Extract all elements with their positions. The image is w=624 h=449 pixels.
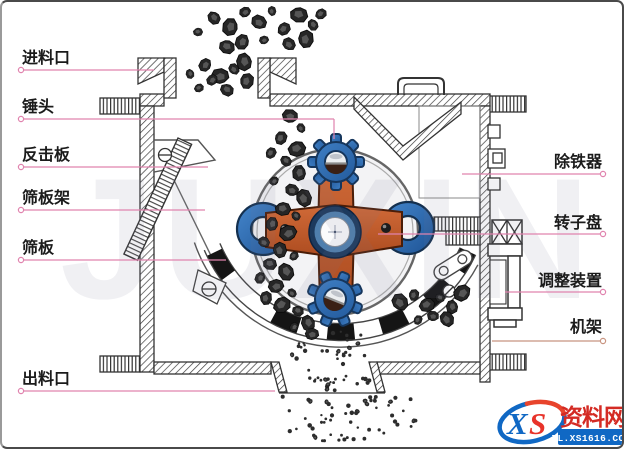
leader-dot <box>18 116 23 121</box>
logo-monogram-s: S <box>529 406 546 441</box>
logo-domain: ZL.XS1616.COM <box>551 433 624 444</box>
label-screen-frame: 筛板架 <box>22 188 70 207</box>
label-hammer-head: 锤头 <box>22 97 54 116</box>
mount-block-top-right <box>488 96 526 112</box>
leader-dot <box>18 388 23 393</box>
diagram-page: JUXIN 进料口 锤头 反击板 筛板架 筛板 出料口 <box>0 0 624 449</box>
leader-dot <box>600 231 605 236</box>
leader-dot <box>18 257 23 262</box>
logo-monogram-x: X <box>506 406 529 441</box>
leader-dot <box>18 207 23 212</box>
label-frame: 机架 <box>570 317 602 336</box>
leader-dot <box>600 338 605 343</box>
crushed-particles <box>281 329 418 442</box>
top-wall-left <box>140 94 164 106</box>
mount-block-bottom-left <box>100 356 140 372</box>
label-feed-inlet: 进料口 <box>22 48 70 67</box>
leader-dot <box>18 164 23 169</box>
logo-site-name: 资料网 <box>560 405 624 430</box>
lifting-handle <box>398 78 444 95</box>
floor-left <box>154 362 271 374</box>
label-iron-remover: 除铁器 <box>554 152 603 171</box>
leader-dot <box>600 171 605 176</box>
label-screen-plate: 筛板 <box>22 238 55 257</box>
label-impact-plate: 反击板 <box>22 145 71 164</box>
floor-right <box>377 362 480 374</box>
label-discharge-outlet: 出料口 <box>22 369 70 388</box>
label-rotor-disc: 转子盘 <box>554 213 602 232</box>
leader-dot <box>18 67 23 72</box>
diagram-canvas: JUXIN 进料口 锤头 反击板 筛板架 筛板 出料口 <box>2 2 624 449</box>
site-logo: X S 资料网 ZL.XS1616.COM <box>495 396 624 449</box>
mount-block-top-left <box>100 98 140 114</box>
leader-dot <box>600 289 605 294</box>
mount-block-bottom-right <box>488 354 526 370</box>
watermark-text: JUXIN <box>60 143 597 335</box>
top-wall-right <box>270 94 490 106</box>
label-adjusting-device: 调整装置 <box>538 271 602 290</box>
